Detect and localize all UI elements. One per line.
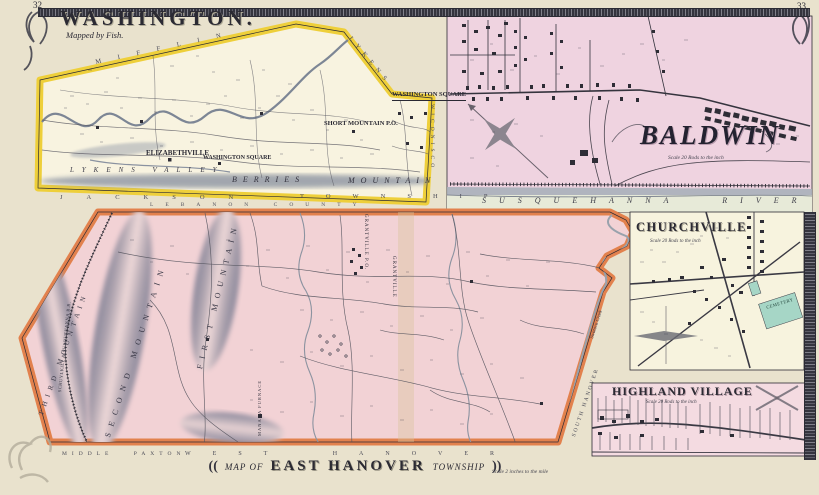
baldwin-scale: Scale 20 Rods to the inch	[668, 156, 724, 162]
corner-flourish-top-left-icon	[24, 10, 47, 70]
baldwin-title: BALDWIN	[640, 122, 780, 149]
berries-label: BERRIES	[232, 176, 305, 184]
highland-title: HIGHLAND VILLAGE	[612, 385, 753, 397]
east-hanover-scale: Scale 2 inches to the mile	[492, 470, 548, 476]
susquehanna-river-label: SUSQUEHANNA RIVER	[482, 197, 810, 205]
baldwin-map	[447, 16, 812, 212]
churchville-map	[630, 212, 804, 370]
map-artwork	[0, 0, 819, 495]
mountain-label: MOUNTAIN	[348, 177, 436, 185]
manada-furnace-label: MANADA FURNACE	[258, 380, 263, 436]
churchville-scale: Scale 20 Rods to the inch	[650, 239, 701, 244]
town-washington-square: WASHINGTON SQUARE	[203, 155, 271, 161]
town-short-mountain: SHORT MOUNTAIN P.O.	[324, 121, 398, 128]
washington-square-inset-title: WASHINGTON SQUARE	[392, 92, 466, 101]
washington-title: WASHINGTON.	[60, 8, 256, 29]
boundary-jackson: JACKSON	[60, 195, 257, 202]
lykens-valley-label: LYKENS VALLEY	[70, 167, 225, 174]
page-border-right	[804, 212, 816, 460]
boundary-west-hanover: WEST HANOVER	[185, 451, 516, 457]
churchville-title: CHURCHVILLE	[636, 221, 747, 234]
highland-scale: Scale 20 Rods to the inch	[646, 400, 697, 405]
washington-credit: Mapped by Fish.	[66, 31, 123, 40]
town-elizabethville: ELIZABETHVILLE	[146, 150, 209, 157]
boundary-lebanon-county: LEBANON COUNTY	[150, 203, 369, 209]
atlas-page: 32 33 WASHINGTON. Mapped by Fish. MIFFLI…	[0, 0, 819, 495]
grantville-label: GRANTVILLE	[391, 256, 396, 298]
boundary-wiconisco: WICONISCO	[429, 104, 435, 171]
cartouche-open: ((	[209, 459, 218, 475]
cartouche-township: TOWNSHIP	[433, 462, 485, 472]
corner-flourish-bottom-left-icon	[9, 437, 50, 482]
grantville-po-label: GRANTVILLE P.O.	[363, 214, 368, 270]
cartouche-name: EAST HANOVER	[270, 458, 425, 475]
page-number-left: 32	[33, 1, 42, 10]
cartouche-map-of: MAP OF	[225, 462, 264, 472]
page-number-right: 33	[797, 2, 806, 11]
boundary-middle-paxton: MIDDLE PAXTON	[62, 452, 185, 458]
boundary-township: TOWNSHIP	[300, 194, 509, 201]
